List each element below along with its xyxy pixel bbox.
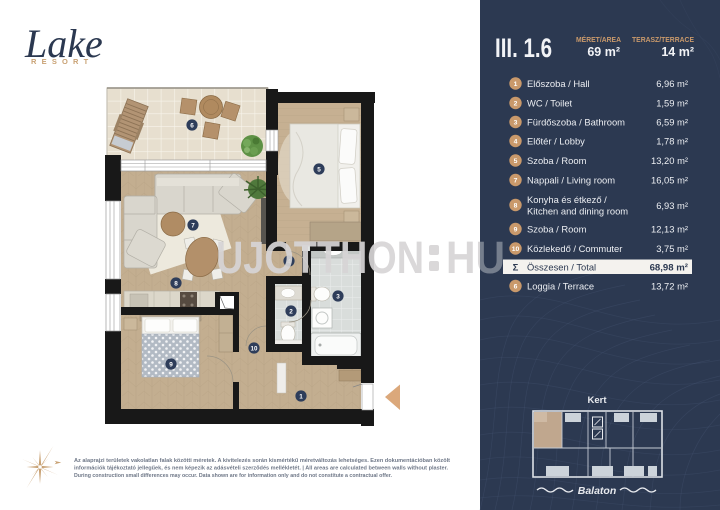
svg-text:13,20 m²: 13,20 m²	[651, 155, 688, 166]
svg-text:6,93 m²: 6,93 m²	[656, 200, 688, 211]
svg-text:14 m²: 14 m²	[661, 45, 694, 59]
svg-text:68,98 m²: 68,98 m²	[650, 263, 688, 274]
svg-text:információk tájékoztató jelleg: információk tájékoztató jellegűek, és ne…	[74, 466, 448, 472]
svg-text:Σ: Σ	[513, 263, 519, 274]
svg-text:69 m²: 69 m²	[587, 45, 620, 59]
svg-text:7: 7	[514, 178, 518, 185]
svg-text:During construction small diff: During construction small differences ma…	[74, 473, 392, 479]
svg-text:Fürdőszoba / Bathroom: Fürdőszoba / Bathroom	[527, 116, 625, 127]
svg-text:6,59 m²: 6,59 m²	[656, 116, 688, 127]
svg-text:6: 6	[190, 123, 194, 130]
svg-text:4: 4	[514, 139, 518, 146]
svg-text:8: 8	[514, 203, 518, 210]
svg-text:Előtér / Lobby: Előtér / Lobby	[527, 135, 585, 146]
svg-text:Az alaprajzi területek vakolat: Az alaprajzi területek vakolatlan falak …	[74, 458, 450, 464]
svg-text:MÉRET/AREA: MÉRET/AREA	[576, 35, 622, 44]
svg-text:13,72 m²: 13,72 m²	[651, 280, 688, 291]
svg-text:10: 10	[512, 246, 520, 253]
svg-text:1,78 m²: 1,78 m²	[656, 135, 688, 146]
svg-text:III. 1.6: III. 1.6	[495, 33, 552, 63]
svg-text:10: 10	[251, 346, 258, 353]
svg-text:WC / Toilet: WC / Toilet	[527, 97, 573, 108]
svg-text:7: 7	[191, 223, 195, 230]
svg-text:1: 1	[299, 394, 303, 401]
svg-text:9: 9	[169, 362, 173, 369]
svg-text:Konyha és étkező /: Konyha és étkező /	[527, 194, 607, 205]
svg-text:1,59 m²: 1,59 m²	[656, 97, 688, 108]
svg-text:8: 8	[174, 281, 178, 288]
svg-text:6,96 m²: 6,96 m²	[656, 78, 688, 89]
svg-text:12,13 m²: 12,13 m²	[651, 223, 688, 234]
svg-text:Loggia / Terrace: Loggia / Terrace	[527, 280, 594, 291]
svg-text:9: 9	[514, 227, 518, 234]
svg-text:Szoba / Room: Szoba / Room	[527, 223, 587, 234]
svg-text:5: 5	[317, 167, 321, 174]
svg-text:2: 2	[289, 309, 293, 316]
svg-text:Szoba / Room: Szoba / Room	[527, 155, 587, 166]
svg-text:Előszoba / Hall: Előszoba / Hall	[527, 78, 590, 89]
svg-text:2: 2	[514, 101, 518, 108]
svg-text:3: 3	[336, 294, 340, 301]
svg-text:Összesen / Total: Összesen / Total	[527, 262, 596, 273]
svg-text:RESORT: RESORT	[31, 57, 93, 66]
svg-text:6: 6	[514, 284, 518, 291]
svg-text:Kitchen and dining room: Kitchen and dining room	[527, 206, 628, 217]
svg-text:3: 3	[514, 120, 518, 127]
svg-text:1: 1	[514, 81, 518, 88]
svg-text:Nappali / Living room: Nappali / Living room	[527, 174, 615, 185]
svg-text:Balaton: Balaton	[578, 485, 617, 497]
svg-text:Közlekedő / Commuter: Közlekedő / Commuter	[527, 243, 622, 254]
svg-text:3,75 m²: 3,75 m²	[656, 243, 688, 254]
svg-text:UJOTTHON: UJOTTHON	[216, 232, 424, 283]
svg-text:Kert: Kert	[587, 395, 607, 406]
svg-text:5: 5	[514, 158, 518, 165]
svg-text:16,05 m²: 16,05 m²	[651, 174, 688, 185]
svg-text:TERASZ/TERRACE: TERASZ/TERRACE	[632, 35, 694, 44]
